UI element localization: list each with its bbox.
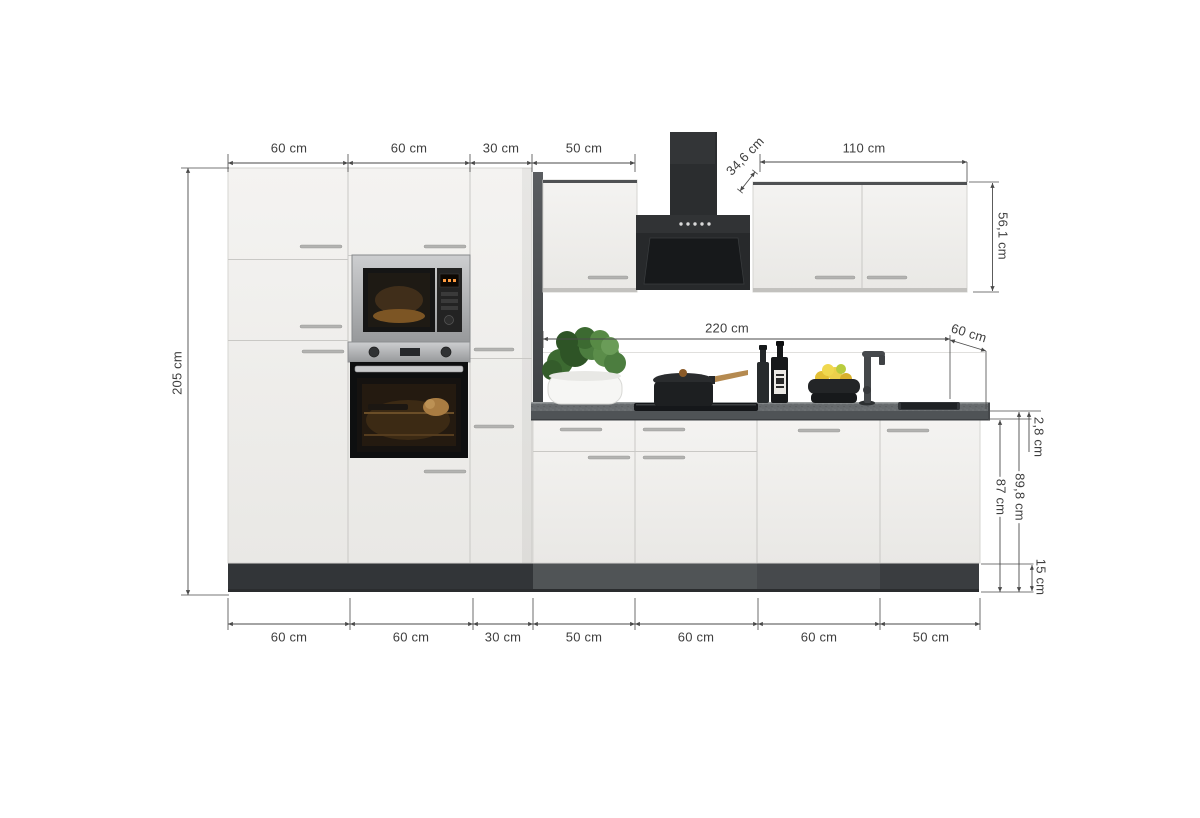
dim-label-top-width-3: 30 cm xyxy=(481,141,521,156)
bottles xyxy=(757,341,788,403)
fruit-bowl xyxy=(808,364,860,403)
plinth xyxy=(228,563,979,592)
kitchen-illustration xyxy=(0,0,1200,818)
dim-label-total-height: 205 cm xyxy=(170,349,185,397)
wall-cabinet-50 xyxy=(543,180,637,292)
saucepan xyxy=(653,369,748,406)
dim-label-worktop-length: 220 cm xyxy=(703,321,751,336)
dim-label-base-unit-height-incl-worktop: 89,8 cm xyxy=(1013,471,1028,523)
dim-label-top-width-4: 50 cm xyxy=(564,141,604,156)
oven xyxy=(348,342,470,458)
dim-label-worktop-thickness: 2,8 cm xyxy=(1032,415,1047,459)
dim-label-bottom-width-1: 60 cm xyxy=(269,630,309,645)
dim-label-bottom-width-2: 60 cm xyxy=(391,630,431,645)
oven-handle xyxy=(355,366,463,372)
dim-label-bottom-width-7: 50 cm xyxy=(911,630,951,645)
dim-label-bottom-width-4: 50 cm xyxy=(564,630,604,645)
wall-cabinet-110 xyxy=(753,182,967,292)
dim-label-top-width-1: 60 cm xyxy=(269,141,309,156)
faucet xyxy=(859,351,885,406)
dim-label-bottom-width-5: 60 cm xyxy=(676,630,716,645)
side-panel xyxy=(533,172,543,403)
dim-label-bottom-width-3: 30 cm xyxy=(483,630,523,645)
base-cabinets xyxy=(533,419,980,563)
dim-label-bottom-width-6: 60 cm xyxy=(799,630,839,645)
sink xyxy=(898,402,960,410)
microwave xyxy=(352,255,470,342)
extractor-hood xyxy=(636,132,750,290)
kitchen-dimension-diagram: 60 cm 60 cm 30 cm 50 cm 34,6 cm 110 cm 5… xyxy=(0,0,1200,818)
oven-knob xyxy=(369,347,379,357)
oven-knob xyxy=(441,347,451,357)
dim-label-top-width-2: 60 cm xyxy=(389,141,429,156)
dim-label-base-unit-height: 87 cm xyxy=(994,477,1009,517)
dim-label-plinth-height: 15 cm xyxy=(1034,557,1049,597)
dim-label-upper-cabinet-height: 56,1 cm xyxy=(996,210,1011,262)
dim-label-upper-cabinet-width: 110 cm xyxy=(841,141,888,156)
